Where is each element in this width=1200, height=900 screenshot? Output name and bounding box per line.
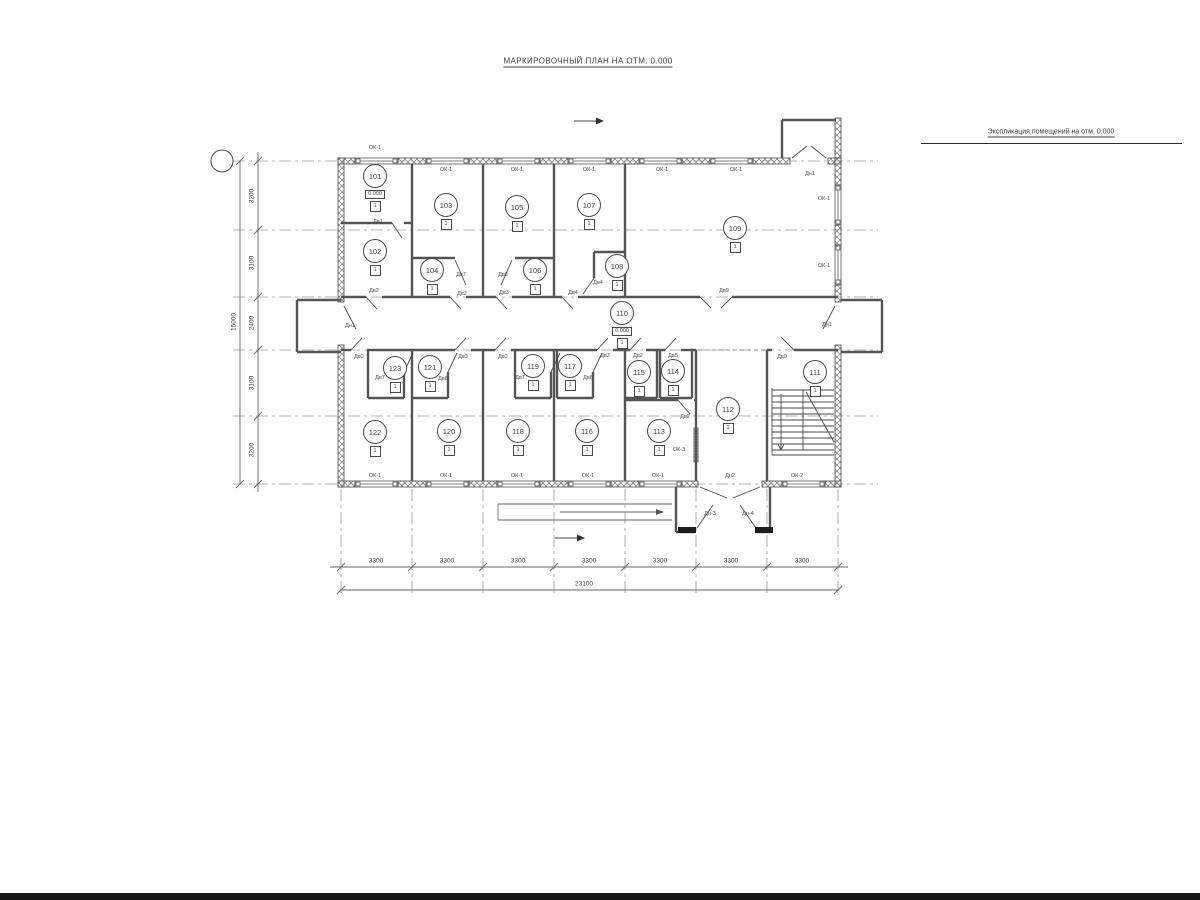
drawing-sheet: МАРКИРОВОЧНЫЙ ПЛАН НА ОТМ. 0.000 [0,0,1200,900]
bottom-bar [0,893,1200,900]
schedule-title: Экспликация помещений на отм. 0.000 [988,129,1115,138]
room-schedule-table [921,143,1182,144]
